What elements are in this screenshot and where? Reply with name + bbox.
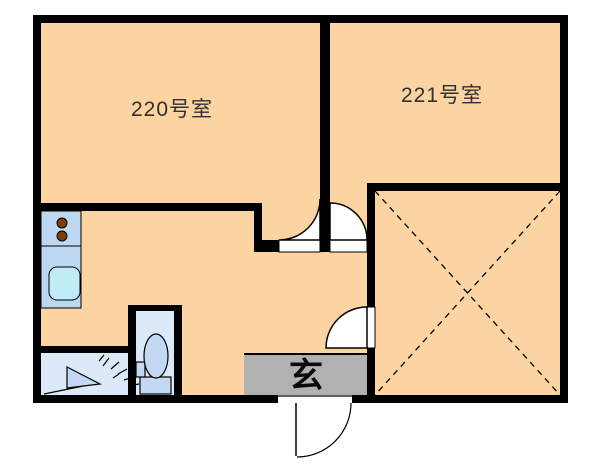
wall-toilet-north (128, 305, 182, 311)
floorplan-canvas: 220号室 221号室 玄 (0, 0, 600, 464)
room-220-label: 220号室 (131, 98, 213, 121)
storage-door-leaf (367, 307, 375, 348)
room-220-door-leaf (279, 240, 320, 252)
kitchen-counter (41, 211, 81, 308)
toilet-bowl (144, 334, 168, 378)
wall-toilet-west (128, 305, 136, 395)
toilet-handle (136, 362, 145, 377)
kitchen-sink-icon (49, 267, 80, 300)
wall-hall-north (254, 240, 279, 252)
toilet-tank (140, 377, 171, 394)
wall-bathroom-north (41, 346, 128, 353)
wall-between-rooms (320, 23, 330, 252)
stove-burner-icon (57, 218, 67, 228)
wall-storage-north (367, 183, 568, 191)
room-221-label: 221号室 (401, 84, 483, 107)
wall-toilet-east (174, 305, 182, 395)
bathroom-floor (41, 353, 128, 395)
room-221-door-leaf (330, 240, 367, 252)
wall-room220-south (41, 203, 262, 211)
entrance-label: 玄 (289, 357, 323, 395)
wall-storage-west-lower (367, 348, 375, 403)
wall-storage-west-upper (367, 183, 375, 307)
stove-burner-icon (57, 231, 67, 241)
